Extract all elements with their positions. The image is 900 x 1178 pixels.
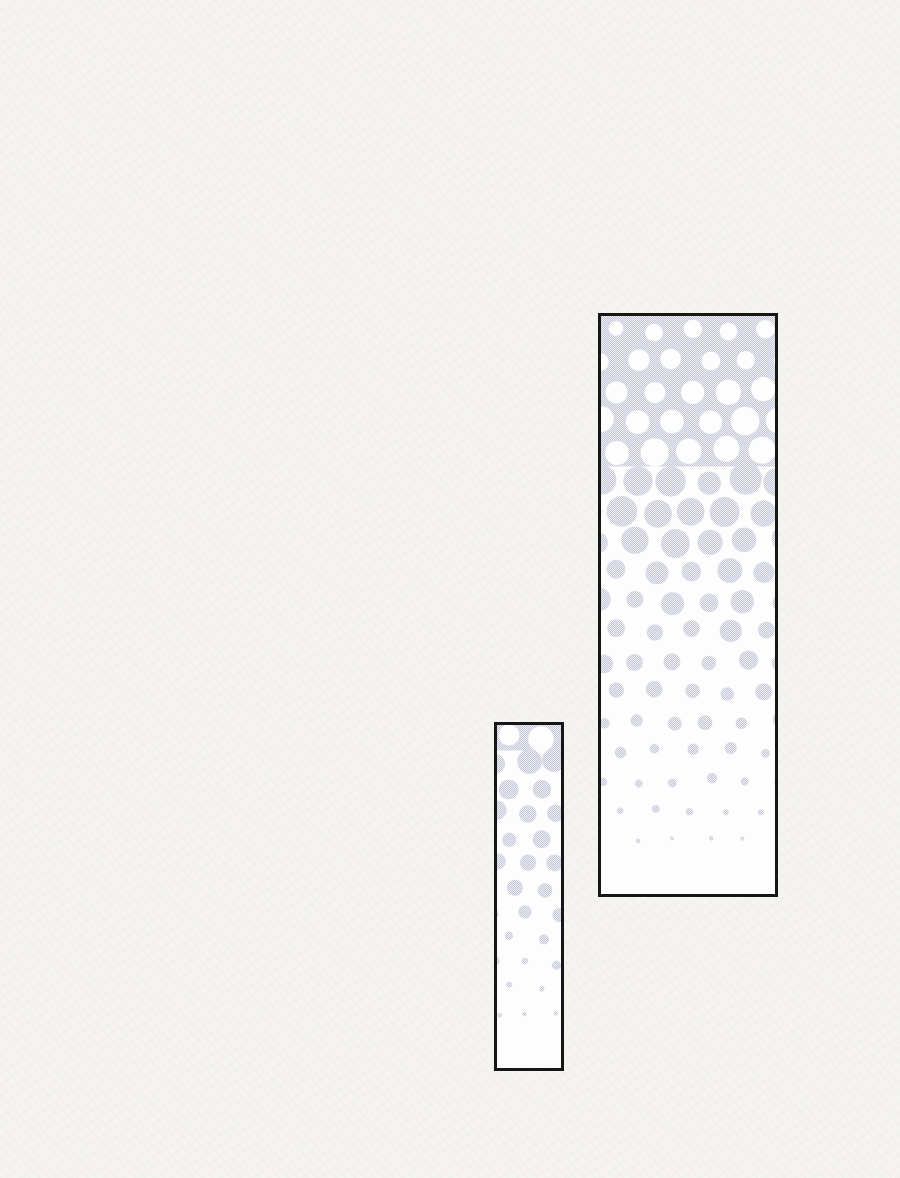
halftone-screentone xyxy=(601,316,775,894)
comic-panel-small xyxy=(494,722,564,1071)
halftone-screentone xyxy=(497,725,561,1068)
comic-page xyxy=(0,0,900,1178)
comic-panel-large xyxy=(598,313,778,897)
